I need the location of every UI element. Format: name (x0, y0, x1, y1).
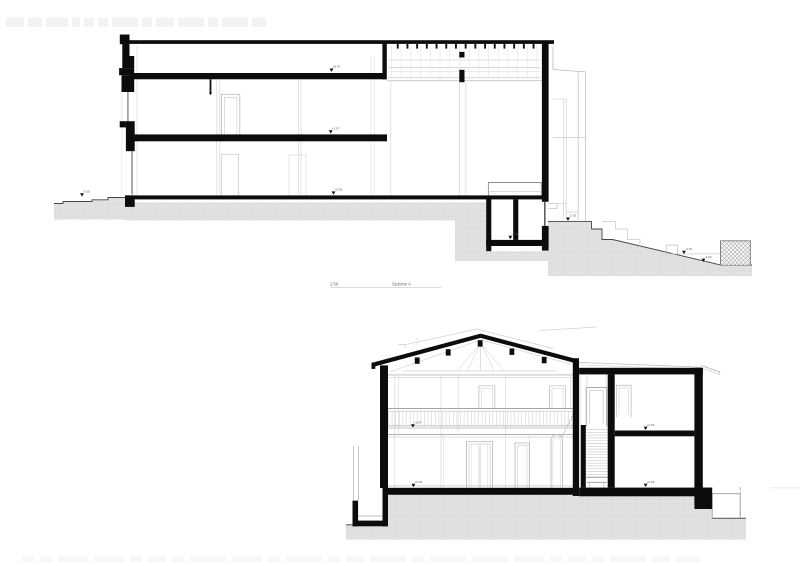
svg-text:-4.60: -4.60 (705, 255, 712, 259)
svg-text:+0.05: +0.05 (647, 480, 655, 484)
svg-text:-2.35: -2.35 (569, 214, 576, 218)
svg-text:1:50: 1:50 (330, 282, 339, 287)
svg-text:Sezione A: Sezione A (392, 282, 411, 287)
svg-text:+2.60: +2.60 (647, 423, 655, 427)
svg-text:+0.00: +0.00 (335, 188, 343, 192)
svg-text:-2.30: -2.30 (512, 232, 519, 236)
svg-text:+2.97: +2.97 (414, 420, 422, 424)
svg-text:+5.97: +5.97 (333, 65, 341, 69)
svg-text:-0.10: -0.10 (83, 189, 90, 193)
svg-text:-4.15: -4.15 (685, 247, 692, 251)
svg-text:+2.97: +2.97 (332, 126, 340, 130)
svg-text:+0.00: +0.00 (415, 480, 423, 484)
